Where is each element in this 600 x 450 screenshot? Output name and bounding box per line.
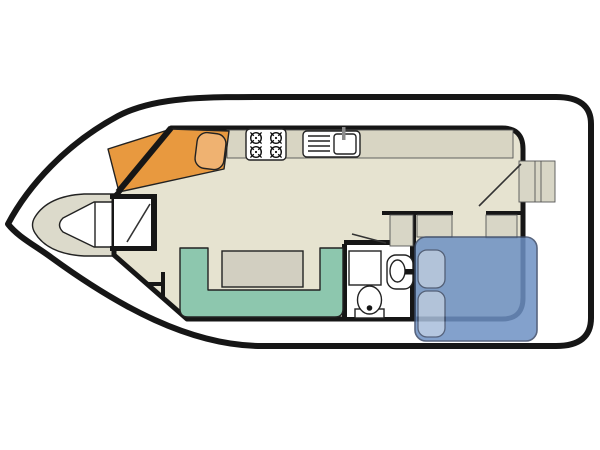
sink-faucet	[342, 127, 346, 140]
stove	[246, 129, 286, 160]
bed-pillow-top	[418, 250, 445, 288]
entry-wall-right	[151, 194, 157, 251]
dinette-table	[222, 251, 303, 287]
floor-plan-canvas	[0, 0, 600, 450]
double-bed	[415, 237, 537, 341]
side-step	[519, 161, 555, 202]
boat-floor-plan	[0, 0, 600, 450]
washbasin	[387, 255, 414, 289]
cabinet-bed-right	[486, 215, 517, 238]
wall-bed-cabin-right-top	[486, 211, 523, 215]
entry-wall-bottom	[110, 246, 157, 251]
cabinet-bathroom	[390, 215, 413, 246]
entry-wall-top	[110, 194, 157, 199]
toilet-flush	[367, 305, 373, 311]
shower	[349, 251, 381, 285]
wall-bed-cabin-left-top	[382, 211, 453, 215]
helm-seat-cushion	[194, 131, 227, 170]
bed-pillow-bottom	[418, 291, 445, 337]
cabinet-bed-left	[417, 215, 452, 237]
washbasin-tap	[405, 269, 414, 275]
sink	[303, 127, 360, 157]
